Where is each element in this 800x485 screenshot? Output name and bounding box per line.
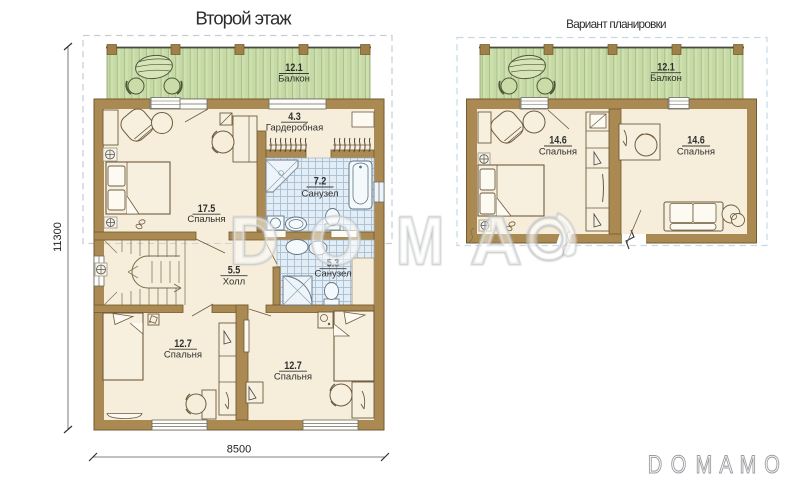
- svg-text:M: M: [740, 451, 757, 479]
- svg-text:Спальня: Спальня: [164, 350, 202, 361]
- svg-text:12.7: 12.7: [284, 360, 302, 372]
- svg-text:12.1: 12.1: [285, 62, 303, 74]
- svg-text:7.2: 7.2: [314, 176, 327, 188]
- svg-text:A: A: [470, 202, 521, 278]
- svg-text:Спальня: Спальня: [187, 214, 225, 225]
- svg-text:A: A: [719, 451, 733, 479]
- svg-text:D: D: [648, 451, 662, 479]
- svg-text:O: O: [671, 451, 687, 479]
- svg-text:4.3: 4.3: [288, 111, 301, 123]
- svg-text:O: O: [310, 203, 363, 279]
- svg-text:14.6: 14.6: [549, 135, 567, 147]
- svg-text:Балкон: Балкон: [278, 74, 310, 85]
- svg-text:Гардеробная: Гардеробная: [266, 123, 323, 134]
- svg-text:14.6: 14.6: [687, 135, 705, 147]
- svg-text:M: M: [696, 451, 713, 479]
- svg-text:12.1: 12.1: [657, 62, 675, 74]
- svg-text:M: M: [396, 203, 444, 279]
- svg-text:Спальня: Спальня: [274, 372, 312, 383]
- svg-text:Вариант планировки: Вариант планировки: [566, 18, 666, 31]
- svg-text:12.7: 12.7: [174, 338, 192, 350]
- svg-text:Спальня: Спальня: [539, 146, 577, 157]
- svg-text:Санузел: Санузел: [301, 189, 338, 200]
- svg-text:8500: 8500: [227, 444, 251, 456]
- svg-text:O: O: [764, 451, 780, 479]
- svg-text:11300: 11300: [52, 222, 64, 252]
- svg-text:Балкон: Балкон: [650, 73, 682, 84]
- svg-text:Спальня: Спальня: [677, 146, 715, 157]
- svg-text:D: D: [229, 203, 278, 279]
- svg-text:Второй этаж: Второй этаж: [195, 8, 292, 29]
